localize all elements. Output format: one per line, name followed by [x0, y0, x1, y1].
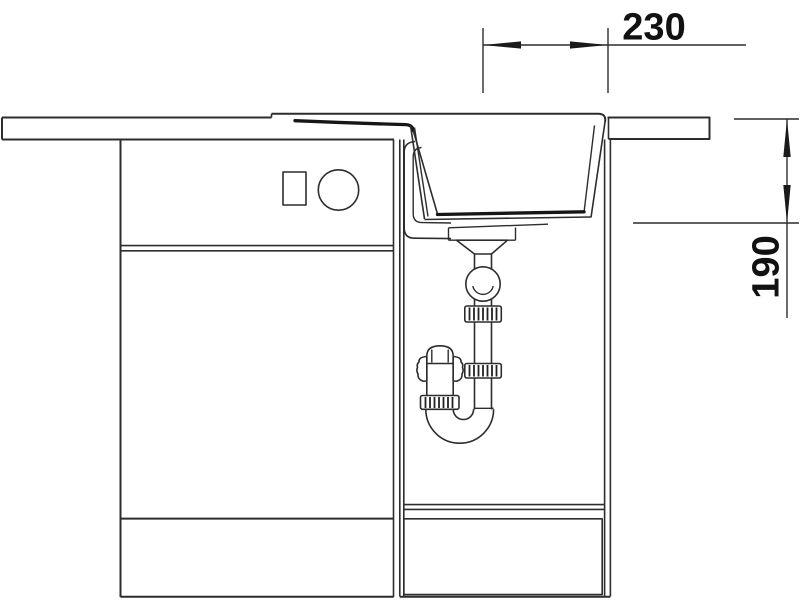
trap-wing-right	[453, 357, 463, 382]
bowl-bottom-inner	[438, 212, 585, 215]
arrow-up-icon	[783, 119, 790, 157]
ball-joint	[466, 267, 500, 301]
drain-flange	[449, 228, 516, 241]
u-bend-outer	[426, 409, 494, 443]
u-bend-inner	[453, 409, 473, 419]
coupling-nut-1-ribs	[470, 308, 497, 321]
coupling-nut-2-ribs	[470, 365, 497, 377]
plinth	[404, 519, 602, 595]
trap-wing-left	[417, 357, 427, 382]
flange-top-line	[449, 224, 549, 228]
sink-installation-drawing: 230 190	[0, 0, 800, 600]
drainboard-surface	[295, 121, 413, 131]
drain-funnel	[457, 240, 508, 254]
bowl-bottom-outer	[425, 217, 592, 220]
base-cabinets	[121, 140, 611, 598]
extension-lines-230	[483, 28, 608, 93]
tailpipe-middle	[475, 322, 492, 364]
arrow-left-icon	[483, 41, 521, 48]
tailpipe-lower	[475, 378, 492, 410]
trap-dome	[427, 346, 453, 364]
switch-square	[283, 172, 306, 205]
drawer-door-gap	[121, 246, 394, 251]
dimension-drain-offset: 230	[483, 7, 746, 94]
shell-outer	[404, 142, 451, 239]
countertop-right-slab	[608, 118, 710, 140]
arrow-down-icon	[783, 185, 790, 223]
mounting-shell	[404, 142, 451, 239]
knob-circle	[318, 170, 358, 210]
coupling-nut-3-ribs	[426, 397, 453, 408]
drawing-svg: 230 190	[0, 0, 800, 600]
dimension-bowl-depth: 190	[633, 119, 799, 318]
dim-label-190: 190	[746, 235, 788, 298]
drain-assembly	[449, 224, 549, 409]
arrow-right-icon	[570, 41, 608, 48]
sink-cabinet-floor	[404, 505, 605, 510]
trap-riser-tube	[427, 364, 453, 396]
p-trap	[417, 346, 494, 443]
sink-cabinet-right-wall	[605, 140, 611, 597]
dim-label-230: 230	[622, 7, 685, 49]
extension-lines-190	[633, 119, 799, 223]
